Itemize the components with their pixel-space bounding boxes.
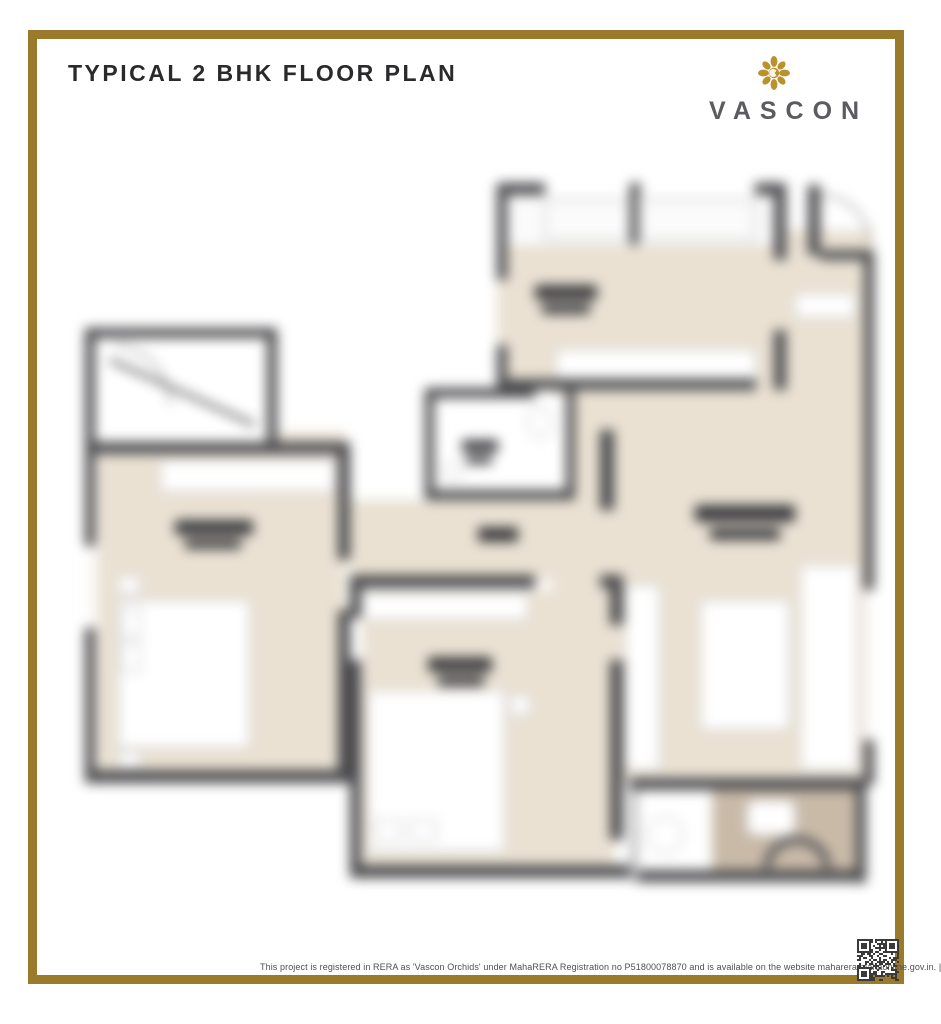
page-title: TYPICAL 2 BHK FLOOR PLAN	[68, 60, 457, 87]
brand-name: VASCON	[700, 97, 848, 126]
qr-code	[857, 938, 899, 982]
vascon-logo: VASCON	[700, 55, 848, 126]
rera-disclaimer: This project is registered in RERA as 'V…	[260, 962, 891, 972]
floor-plan-image	[70, 170, 880, 935]
corridor-label-blob	[478, 527, 518, 542]
vascon-flower-icon	[757, 55, 791, 91]
